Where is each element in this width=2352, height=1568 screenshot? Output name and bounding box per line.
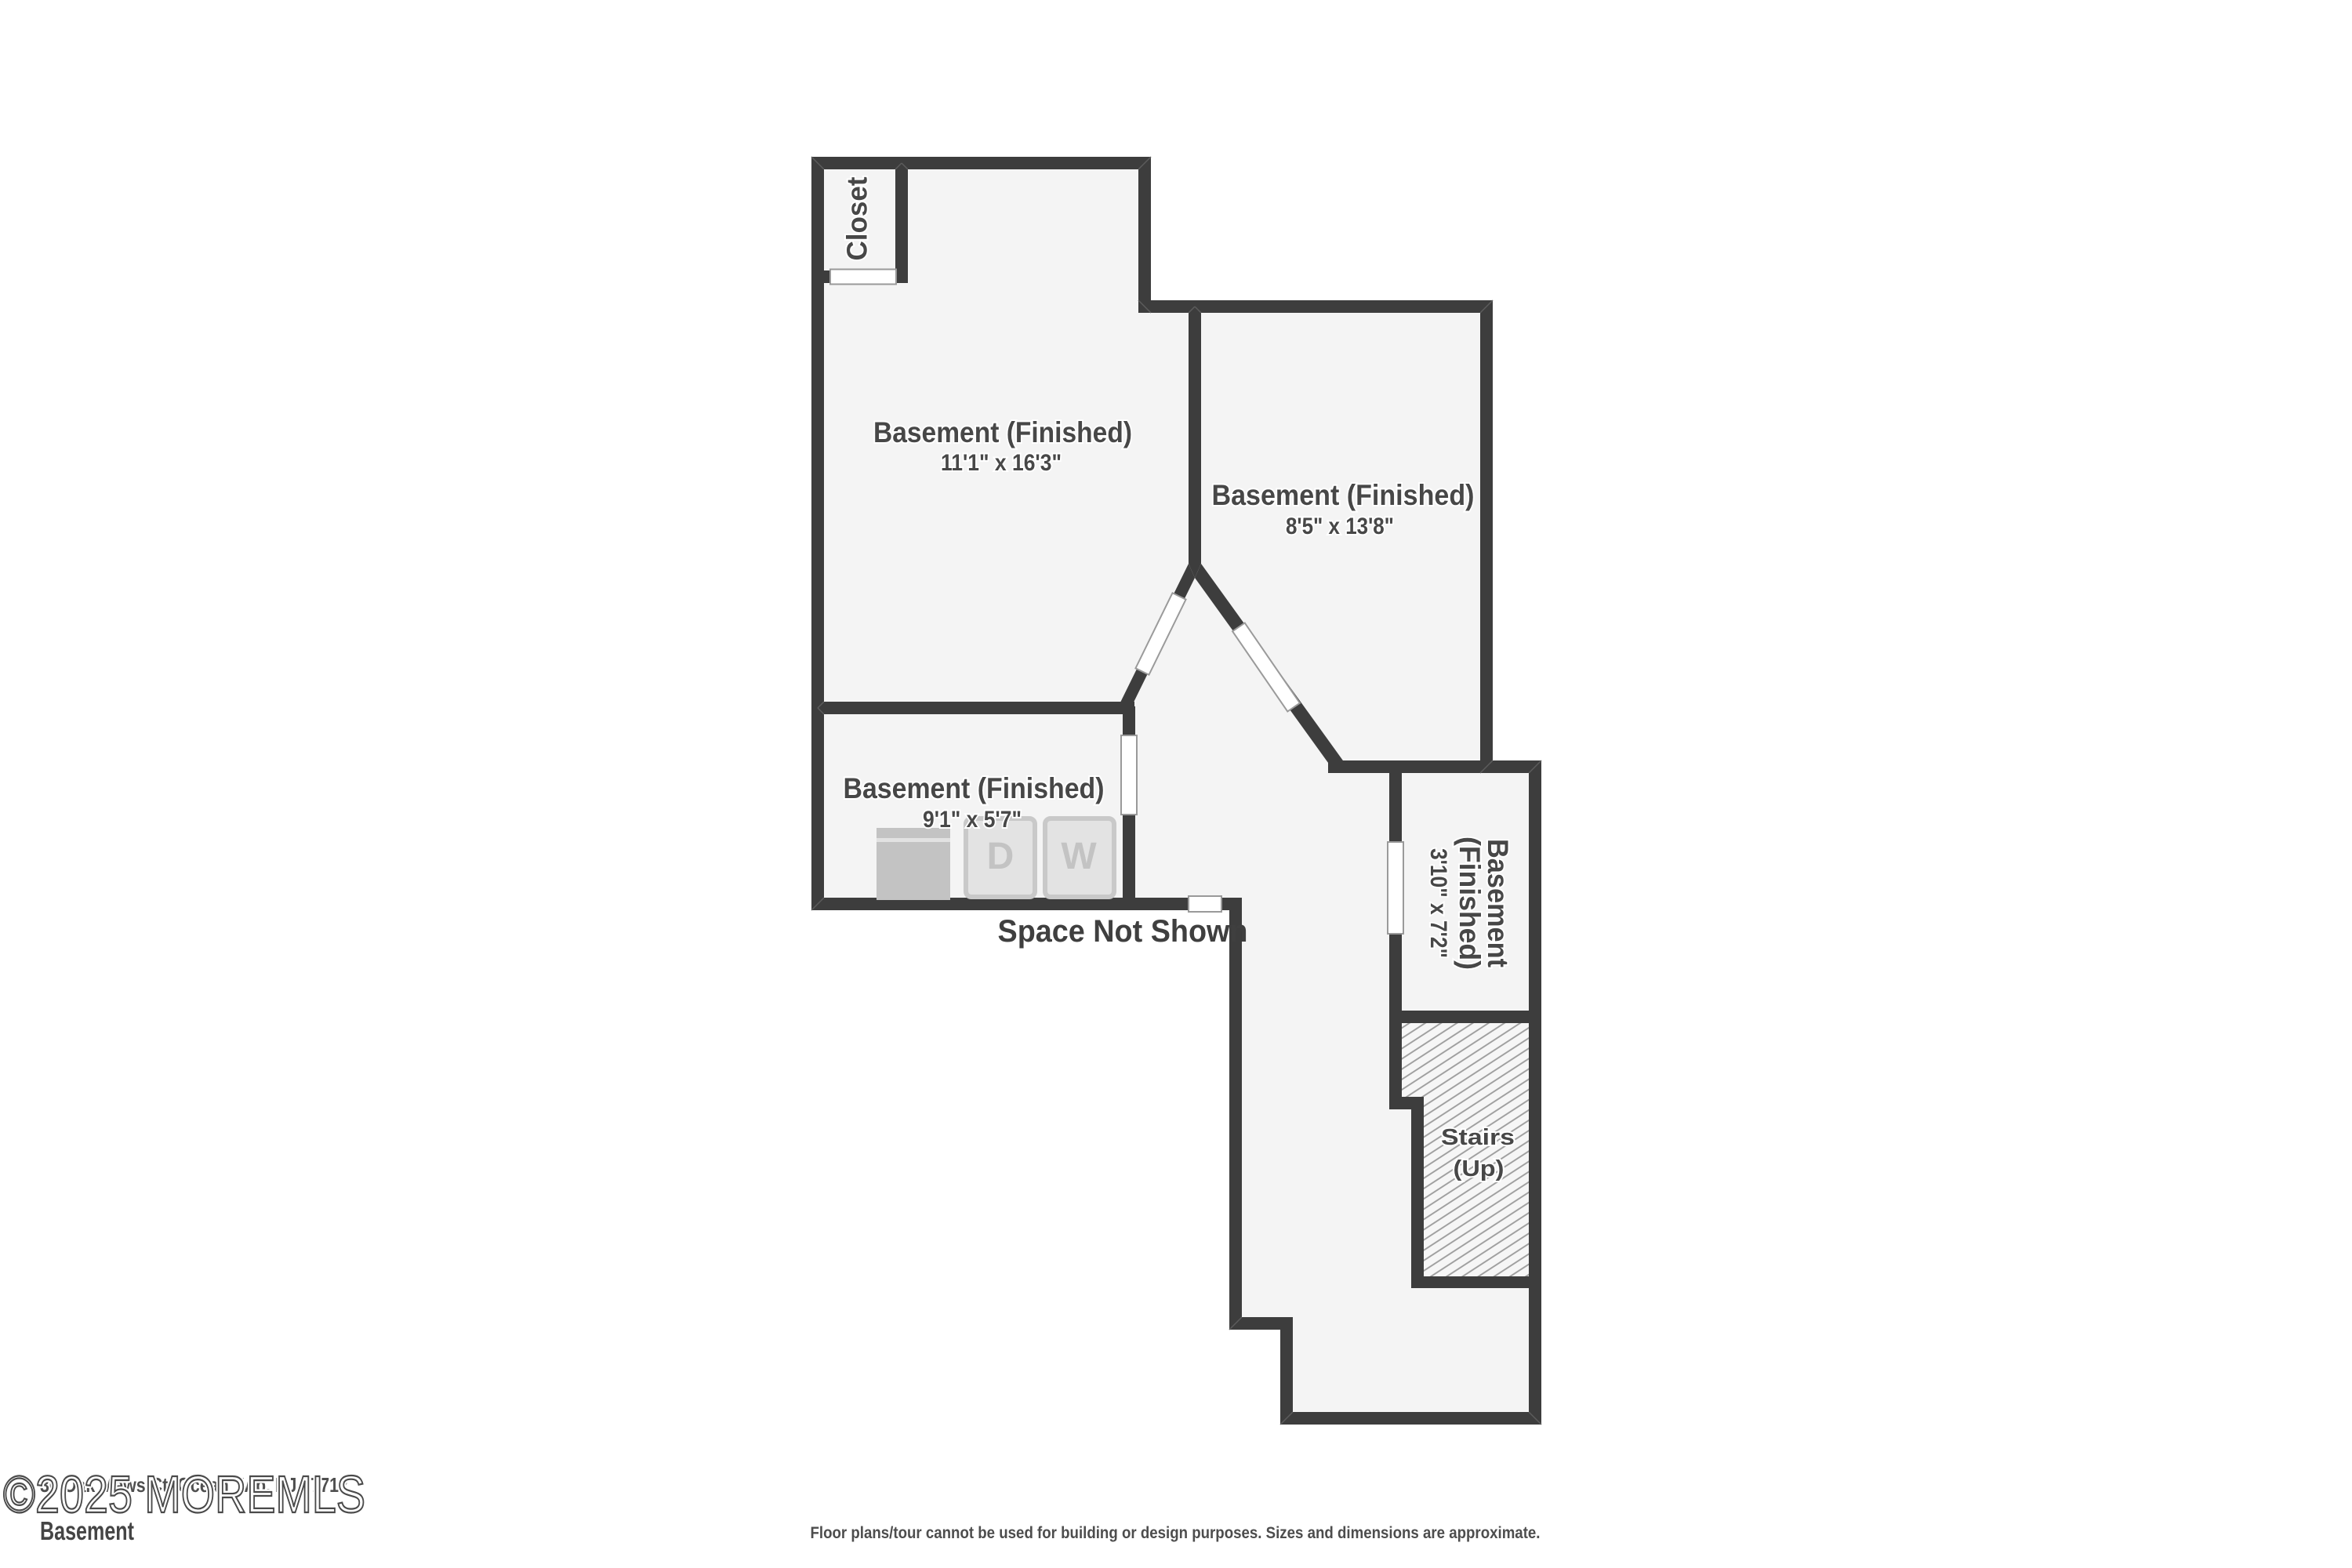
svg-text:Closet: Closet xyxy=(841,176,873,260)
svg-text:Basement: Basement xyxy=(1482,839,1514,967)
svg-text:Basement (Finished): Basement (Finished) xyxy=(873,416,1132,448)
svg-text:(Finished): (Finished) xyxy=(1454,837,1486,970)
svg-text:(Up): (Up) xyxy=(1454,1156,1504,1181)
svg-text:©2025 MOREMLS: ©2025 MOREMLS xyxy=(3,1465,365,1524)
svg-text:8'5" x 13'8": 8'5" x 13'8" xyxy=(1286,514,1394,539)
svg-text:D: D xyxy=(987,836,1014,877)
svg-text:Stairs: Stairs xyxy=(1441,1125,1515,1150)
svg-text:Basement (Finished): Basement (Finished) xyxy=(844,772,1105,804)
svg-text:3'10" x 7'2": 3'10" x 7'2" xyxy=(1425,848,1451,958)
svg-text:Floor plans/tour cannot be use: Floor plans/tour cannot be used for buil… xyxy=(811,1524,1541,1542)
svg-text:9'1" x 5'7": 9'1" x 5'7" xyxy=(923,807,1022,833)
svg-text:Basement: Basement xyxy=(40,1516,134,1545)
svg-text:Space Not Shown: Space Not Shown xyxy=(998,914,1248,949)
svg-text:11'1" x 16'3": 11'1" x 16'3" xyxy=(941,450,1062,476)
svg-text:Basement (Finished): Basement (Finished) xyxy=(1212,479,1475,511)
svg-text:W: W xyxy=(1061,836,1097,877)
